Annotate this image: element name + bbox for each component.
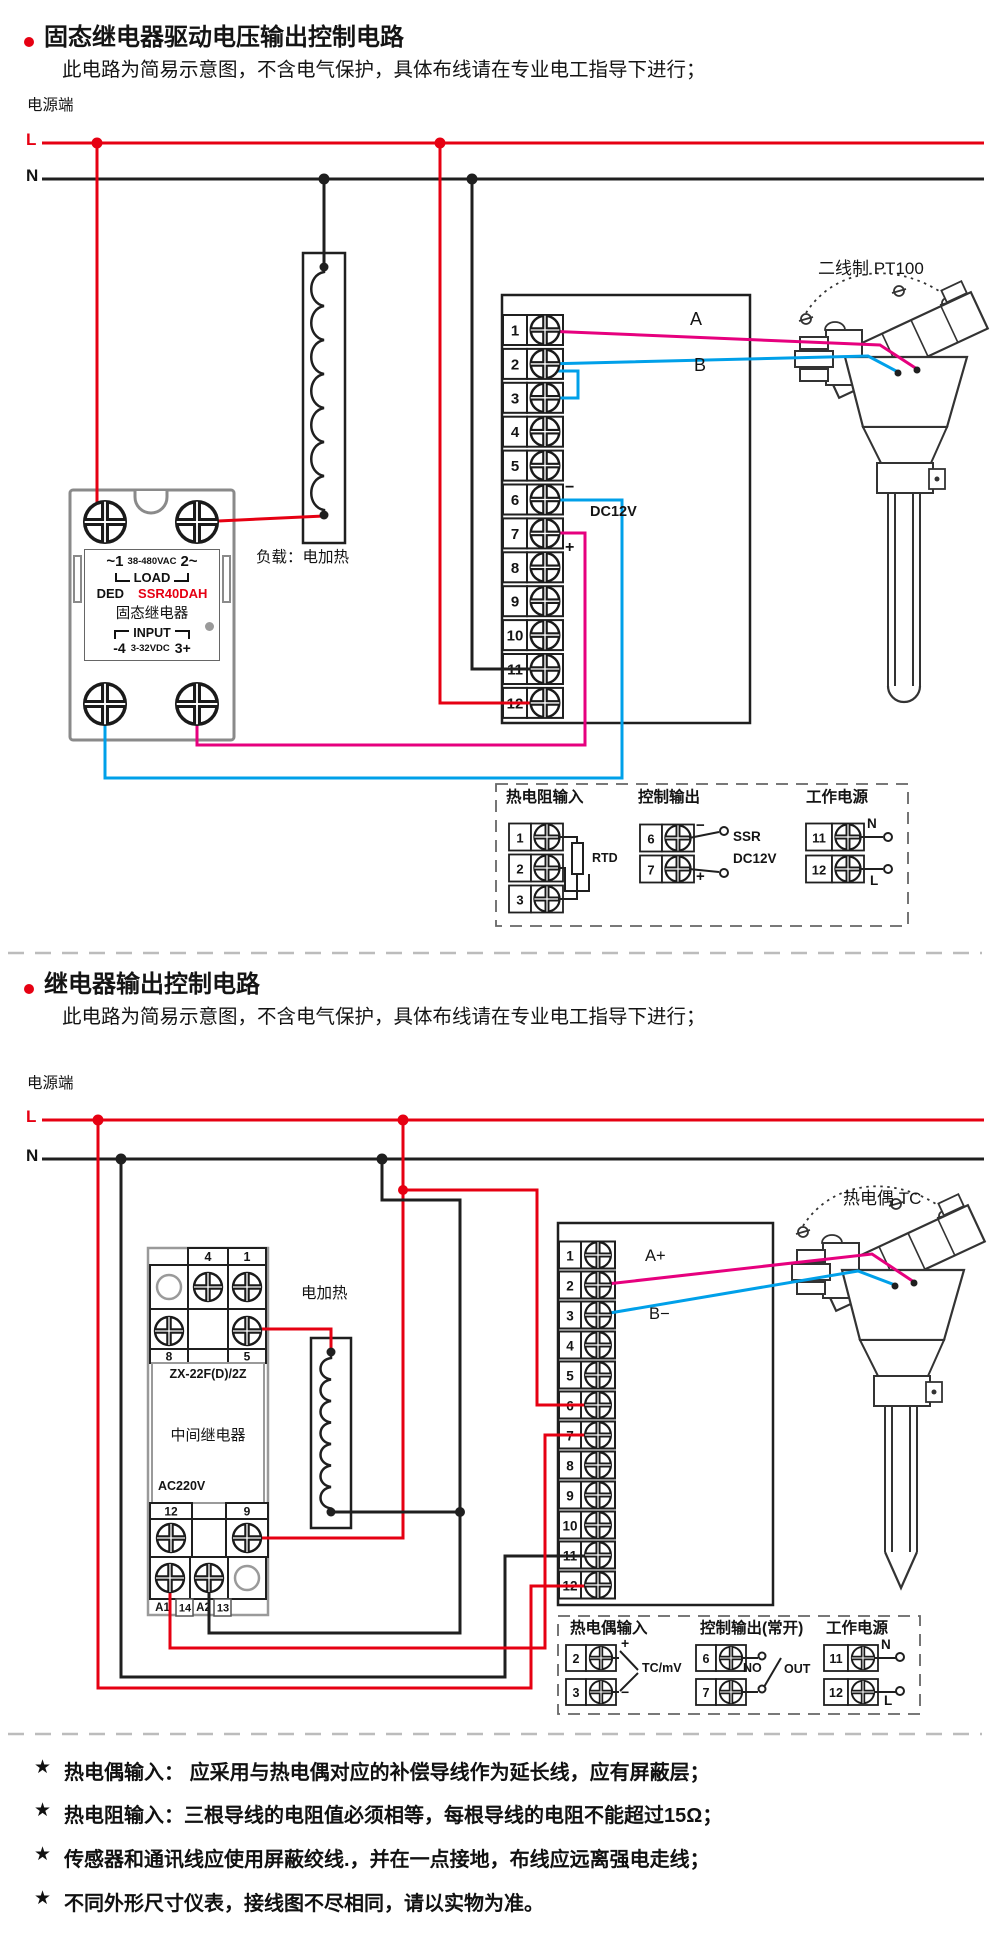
switch-blade-icon	[764, 1658, 781, 1687]
terminal-number: 7	[511, 526, 519, 543]
terminal-number: 11	[829, 1652, 842, 1666]
diagram-graphic	[311, 1338, 351, 1528]
terminal-number: 1	[566, 1249, 574, 1264]
screw-icon	[835, 824, 860, 849]
diagram-graphic	[398, 1115, 409, 1126]
diagram-graphic: -43-32VDC3+	[113, 640, 191, 656]
screw-icon	[531, 417, 560, 446]
legend2-minus: −	[621, 1684, 629, 1701]
terminal-number: 2	[516, 862, 523, 877]
legend2-plus: +	[621, 1635, 629, 1652]
note-text: 不同外形尺寸仪表，接线图不尽相同，请以实物为准。	[64, 1887, 544, 1916]
ssr-voltage-range: 38-480VAC	[128, 556, 177, 567]
line-l-label-1: L	[26, 130, 36, 150]
relay-terminal-label: 12	[164, 1505, 178, 1519]
screw-icon	[534, 855, 559, 880]
relay-terminal-label: 13	[217, 1603, 229, 1615]
terminal-number: 10	[507, 628, 524, 645]
diagram-graphic	[233, 1317, 261, 1345]
pt100-probe	[888, 493, 920, 686]
screw-icon	[852, 1647, 874, 1669]
legend2-g2-title: 控制输出(常开)	[700, 1620, 803, 1639]
screw-icon	[585, 1392, 611, 1418]
star-icon: ★	[34, 1799, 51, 1828]
screw-icon	[531, 587, 560, 616]
diagram-graphic	[303, 253, 345, 543]
terminal-number: 3	[511, 390, 519, 407]
terminal-number: 2	[573, 1652, 580, 1666]
diagram-graphic	[377, 1154, 388, 1165]
diagram-graphic: ~138-480VAC2~	[106, 553, 197, 570]
diagram-graphic	[895, 370, 902, 377]
diagram-graphic	[914, 367, 921, 374]
terminal-number: 12	[829, 1686, 843, 1700]
sensor-label-1: 二线制 PT100	[818, 259, 924, 279]
ssr-control-voltage: 3-32VDC	[131, 643, 170, 654]
dc-minus-label: −	[565, 478, 574, 497]
dc12v-label: DC12V	[590, 504, 637, 521]
power-label-2: 电源端	[27, 1075, 74, 1094]
diagram-graphic	[93, 1115, 104, 1126]
terminal-number: 11	[812, 831, 826, 846]
note-line: ★传感器和通讯线应使用屏蔽绞线.，并在一点接地，布线应远离强电走线；	[34, 1843, 710, 1872]
screw-icon	[531, 350, 560, 379]
bracket-icon	[175, 630, 190, 639]
star-icon: ★	[34, 1756, 51, 1785]
diagram-graphic	[92, 138, 103, 149]
screw-icon	[835, 856, 860, 881]
screw-icon	[585, 1542, 611, 1568]
note-text: 热电阻输入：三根导线的电阻值必须相等，每根导线的电阻不能超过15Ω；	[64, 1799, 722, 1828]
diagram-graphic	[194, 1273, 222, 1301]
power-lines-section2	[42, 1120, 984, 1159]
bullet-icon-2	[24, 984, 34, 994]
screw-icon	[534, 886, 559, 911]
diagram-graphic	[223, 556, 230, 602]
diagram-graphic	[156, 1564, 184, 1592]
diagram-graphic	[135, 491, 167, 513]
diagram-graphic	[116, 1154, 127, 1165]
relay-model: ZX-22F(D)/2Z	[152, 1367, 264, 1382]
wire-aplus-label: A+	[645, 1247, 666, 1267]
legend1-n-label: N	[867, 816, 877, 832]
note-text: 热电偶输入： 应采用与热电偶对应的补偿导线作为延长线，应有屏蔽层；	[64, 1756, 710, 1785]
diagram-base: 4185129A114A213 123456789101112123456789…	[8, 143, 988, 1734]
diagram-graphic	[188, 1309, 228, 1349]
screw-icon	[585, 1242, 611, 1268]
screw-icon	[585, 1572, 611, 1598]
diagram-graphic	[720, 869, 728, 877]
relay-terminal-label: 8	[166, 1350, 173, 1364]
load-label-1: 负载：电加热	[256, 549, 349, 568]
diagram-graphic: DEDSSR40DAH	[97, 586, 208, 601]
terminal-number: 5	[511, 458, 519, 475]
star-icon: ★	[34, 1843, 51, 1872]
bracket-icon	[174, 573, 189, 582]
diagram-graphic	[74, 556, 81, 602]
heater-load-1	[303, 253, 345, 543]
section2-subtitle: 此电路为简易示意图，不含电气保护，具体布线请在专业电工指导下进行；	[62, 1006, 706, 1029]
screw-icon	[590, 1647, 612, 1669]
legend1-minus: −	[696, 817, 705, 835]
terminal-number: 2	[511, 356, 519, 373]
screw-icon	[585, 1362, 611, 1388]
screw-icon	[585, 1512, 611, 1538]
terminal-number: 2	[566, 1279, 574, 1294]
relay-name: 中间继电器	[152, 1427, 264, 1445]
screw-icon	[531, 655, 560, 684]
legend1-g1-title: 热电阻输入	[506, 789, 584, 808]
diagram-graphic	[467, 174, 478, 185]
ssr-terminal-3: 3+	[175, 640, 191, 656]
ssr-terminal-2: 2~	[180, 553, 197, 570]
terminal-number: 6	[703, 1652, 710, 1666]
dc-plus-label: +	[565, 538, 574, 557]
terminal-number: 5	[566, 1369, 574, 1384]
diagram-graphic	[455, 1507, 465, 1517]
wiring-diagram-page: 4185129A114A213 123456789101112123456789…	[0, 0, 990, 1960]
diagram-graphic: LOAD	[115, 570, 190, 585]
ssr-name: 固态继电器	[116, 602, 189, 623]
diagram-graphic: INPUT	[114, 626, 190, 640]
terminal-number: 4	[511, 424, 520, 441]
legend1-l-label: L	[870, 873, 878, 889]
note-line: ★不同外形尺寸仪表，接线图不尽相同，请以实物为准。	[34, 1887, 544, 1916]
ssr-led-icon	[205, 622, 214, 631]
ssr-terminal-4: -4	[113, 640, 125, 656]
line-n-label-2: N	[26, 1146, 38, 1166]
diagram-graphic	[320, 263, 329, 272]
diagram-graphic	[177, 502, 218, 543]
pt100-sensor-head	[795, 273, 988, 493]
bracket-icon	[114, 630, 129, 639]
tc-mv-label: TC/mV	[642, 1661, 682, 1676]
diagram-graphic	[327, 1508, 336, 1517]
diagram-graphic	[759, 1653, 766, 1660]
terminal-number: 7	[703, 1686, 710, 1700]
screw-icon	[720, 1647, 742, 1669]
diagram-graphic	[911, 1280, 918, 1287]
terminal-number: 4	[566, 1339, 574, 1354]
relay-terminal-label: A1	[155, 1602, 170, 1614]
heater-load-2	[311, 1338, 351, 1528]
screw-icon	[531, 384, 560, 413]
relay-indicator-2	[235, 1566, 259, 1590]
screw-icon	[534, 824, 559, 849]
legend2-l-label: L	[884, 1693, 892, 1709]
diagram-graphic	[85, 684, 126, 725]
out-label: OUT	[784, 1662, 810, 1677]
terminal-number: 3	[516, 893, 523, 908]
no-label: NO	[743, 1661, 762, 1676]
wire-b-label: B	[694, 355, 706, 377]
diagram-graphic	[884, 865, 892, 873]
section2-title: 继电器输出控制电路	[44, 971, 260, 1000]
diagram-graphic	[319, 174, 330, 185]
heater-label-2: 电加热	[301, 1285, 348, 1304]
screw-icon	[665, 825, 690, 850]
line-l-label-2: L	[26, 1107, 36, 1127]
ssr-input-label: INPUT	[133, 626, 171, 640]
terminal-number: 9	[566, 1489, 574, 1504]
screw-icon	[585, 1422, 611, 1448]
note-line: ★热电阻输入：三根导线的电阻值必须相等，每根导线的电阻不能超过15Ω；	[34, 1799, 722, 1828]
terminal-number: 6	[511, 492, 519, 509]
relay-voltage: AC220V	[158, 1479, 205, 1494]
screw-icon	[531, 451, 560, 480]
diagram-graphic	[896, 1687, 904, 1695]
diagram-graphic	[320, 511, 329, 520]
terminal-number: 8	[566, 1459, 574, 1474]
diagram-graphic	[233, 1524, 261, 1552]
screw-icon	[585, 1272, 611, 1298]
diagram-graphic	[85, 502, 126, 543]
ssr-terminal-1: ~1	[106, 553, 123, 570]
screw-icon	[590, 1681, 612, 1703]
screw-icon	[665, 856, 690, 881]
legend1-plus: +	[696, 868, 705, 886]
diagram-graphic	[720, 827, 728, 835]
diagram-graphic	[157, 1524, 185, 1552]
line-n-label-1: N	[26, 166, 38, 186]
diagram-graphic	[233, 1273, 261, 1301]
relay-indicator-1	[157, 1275, 181, 1299]
screw-icon	[531, 621, 560, 650]
relay-terminal-label: 1	[244, 1250, 251, 1264]
relay-terminal-label: 14	[179, 1603, 192, 1615]
ssr-model: SSR40DAH	[138, 586, 207, 601]
legend1-g3-title: 工作电源	[806, 789, 868, 808]
diagram-graphic	[192, 1519, 226, 1557]
section1-title: 固态继电器驱动电压输出控制电路	[44, 24, 404, 53]
tc-sensor-head	[792, 1186, 985, 1406]
sensor-label-2: 热电偶 TC	[843, 1189, 921, 1209]
screw-icon	[531, 485, 560, 514]
screw-icon	[585, 1452, 611, 1478]
terminal-number: 7	[647, 863, 654, 878]
ssr-load-label: LOAD	[134, 570, 171, 585]
diagram-graphic	[572, 843, 583, 874]
screw-icon	[585, 1482, 611, 1508]
note-line: ★热电偶输入： 应采用与热电偶对应的补偿导线作为延长线，应有屏蔽层；	[34, 1756, 710, 1785]
ssr-brand: DED	[97, 586, 124, 601]
legend1-g2-title: 控制输出	[638, 789, 700, 808]
diagram-graphic	[892, 1283, 899, 1290]
legend2-g1-title: 热电偶输入	[570, 1620, 648, 1639]
screw-icon	[531, 519, 560, 548]
ssr-label-block: ~138-480VAC2~ LOAD DEDSSR40DAH 固态继电器 INP…	[84, 549, 220, 661]
terminal-number: 6	[647, 832, 654, 847]
wire-a-label: A	[690, 309, 702, 331]
screw-icon	[585, 1302, 611, 1328]
wire-bminus-label: B−	[649, 1305, 670, 1325]
diagram-graphic	[177, 684, 218, 725]
diagram-graphic	[195, 1564, 223, 1592]
relay-terminal-label: 9	[244, 1505, 251, 1519]
tc-probe-tip	[885, 1552, 917, 1588]
star-icon: ★	[34, 1887, 51, 1916]
screw-icon	[531, 689, 560, 718]
legend1-ssr-label: SSR	[733, 829, 761, 845]
diagram-graphic: 固态继电器	[116, 602, 189, 623]
legend2-n-label: N	[881, 1637, 891, 1653]
bullet-icon-1	[24, 37, 34, 47]
screw-icon	[531, 553, 560, 582]
legend1-dc12v-label: DC12V	[733, 851, 777, 867]
diagram-graphic	[155, 1317, 183, 1345]
terminal-number: 9	[511, 594, 519, 611]
relay-terminal-label: 5	[244, 1350, 251, 1364]
note-text: 传感器和通讯线应使用屏蔽绞线.，并在一点接地，布线应远离强电走线；	[64, 1843, 710, 1872]
power-lines-section1	[42, 143, 984, 179]
terminal-number: 10	[562, 1519, 577, 1534]
terminal-number: 8	[511, 560, 519, 577]
bracket-icon	[115, 573, 130, 582]
diagram-graphic	[896, 1653, 904, 1661]
section1-subtitle: 此电路为简易示意图，不含电气保护，具体布线请在专业电工指导下进行；	[62, 59, 706, 82]
diagram-graphic	[435, 138, 446, 149]
pt100-probe-tip	[888, 686, 920, 702]
screw-icon	[720, 1681, 742, 1703]
diagram-graphic	[327, 1348, 336, 1357]
diagram-graphic	[884, 833, 892, 841]
terminal-number: 3	[566, 1309, 574, 1324]
screw-icon	[585, 1332, 611, 1358]
terminal-number: 1	[516, 831, 523, 846]
screw-icon	[531, 316, 560, 345]
terminal-number: 12	[812, 863, 826, 878]
terminal-number: 3	[573, 1686, 580, 1700]
diagram-graphic	[398, 1185, 408, 1195]
power-label-1: 电源端	[27, 97, 74, 116]
relay-terminal-label: 4	[205, 1250, 212, 1264]
screw-icon	[852, 1681, 874, 1703]
legend2-g3-title: 工作电源	[826, 1620, 888, 1639]
tc-probe	[885, 1406, 917, 1552]
rtd-label: RTD	[592, 851, 618, 866]
terminal-number: 1	[511, 323, 519, 340]
